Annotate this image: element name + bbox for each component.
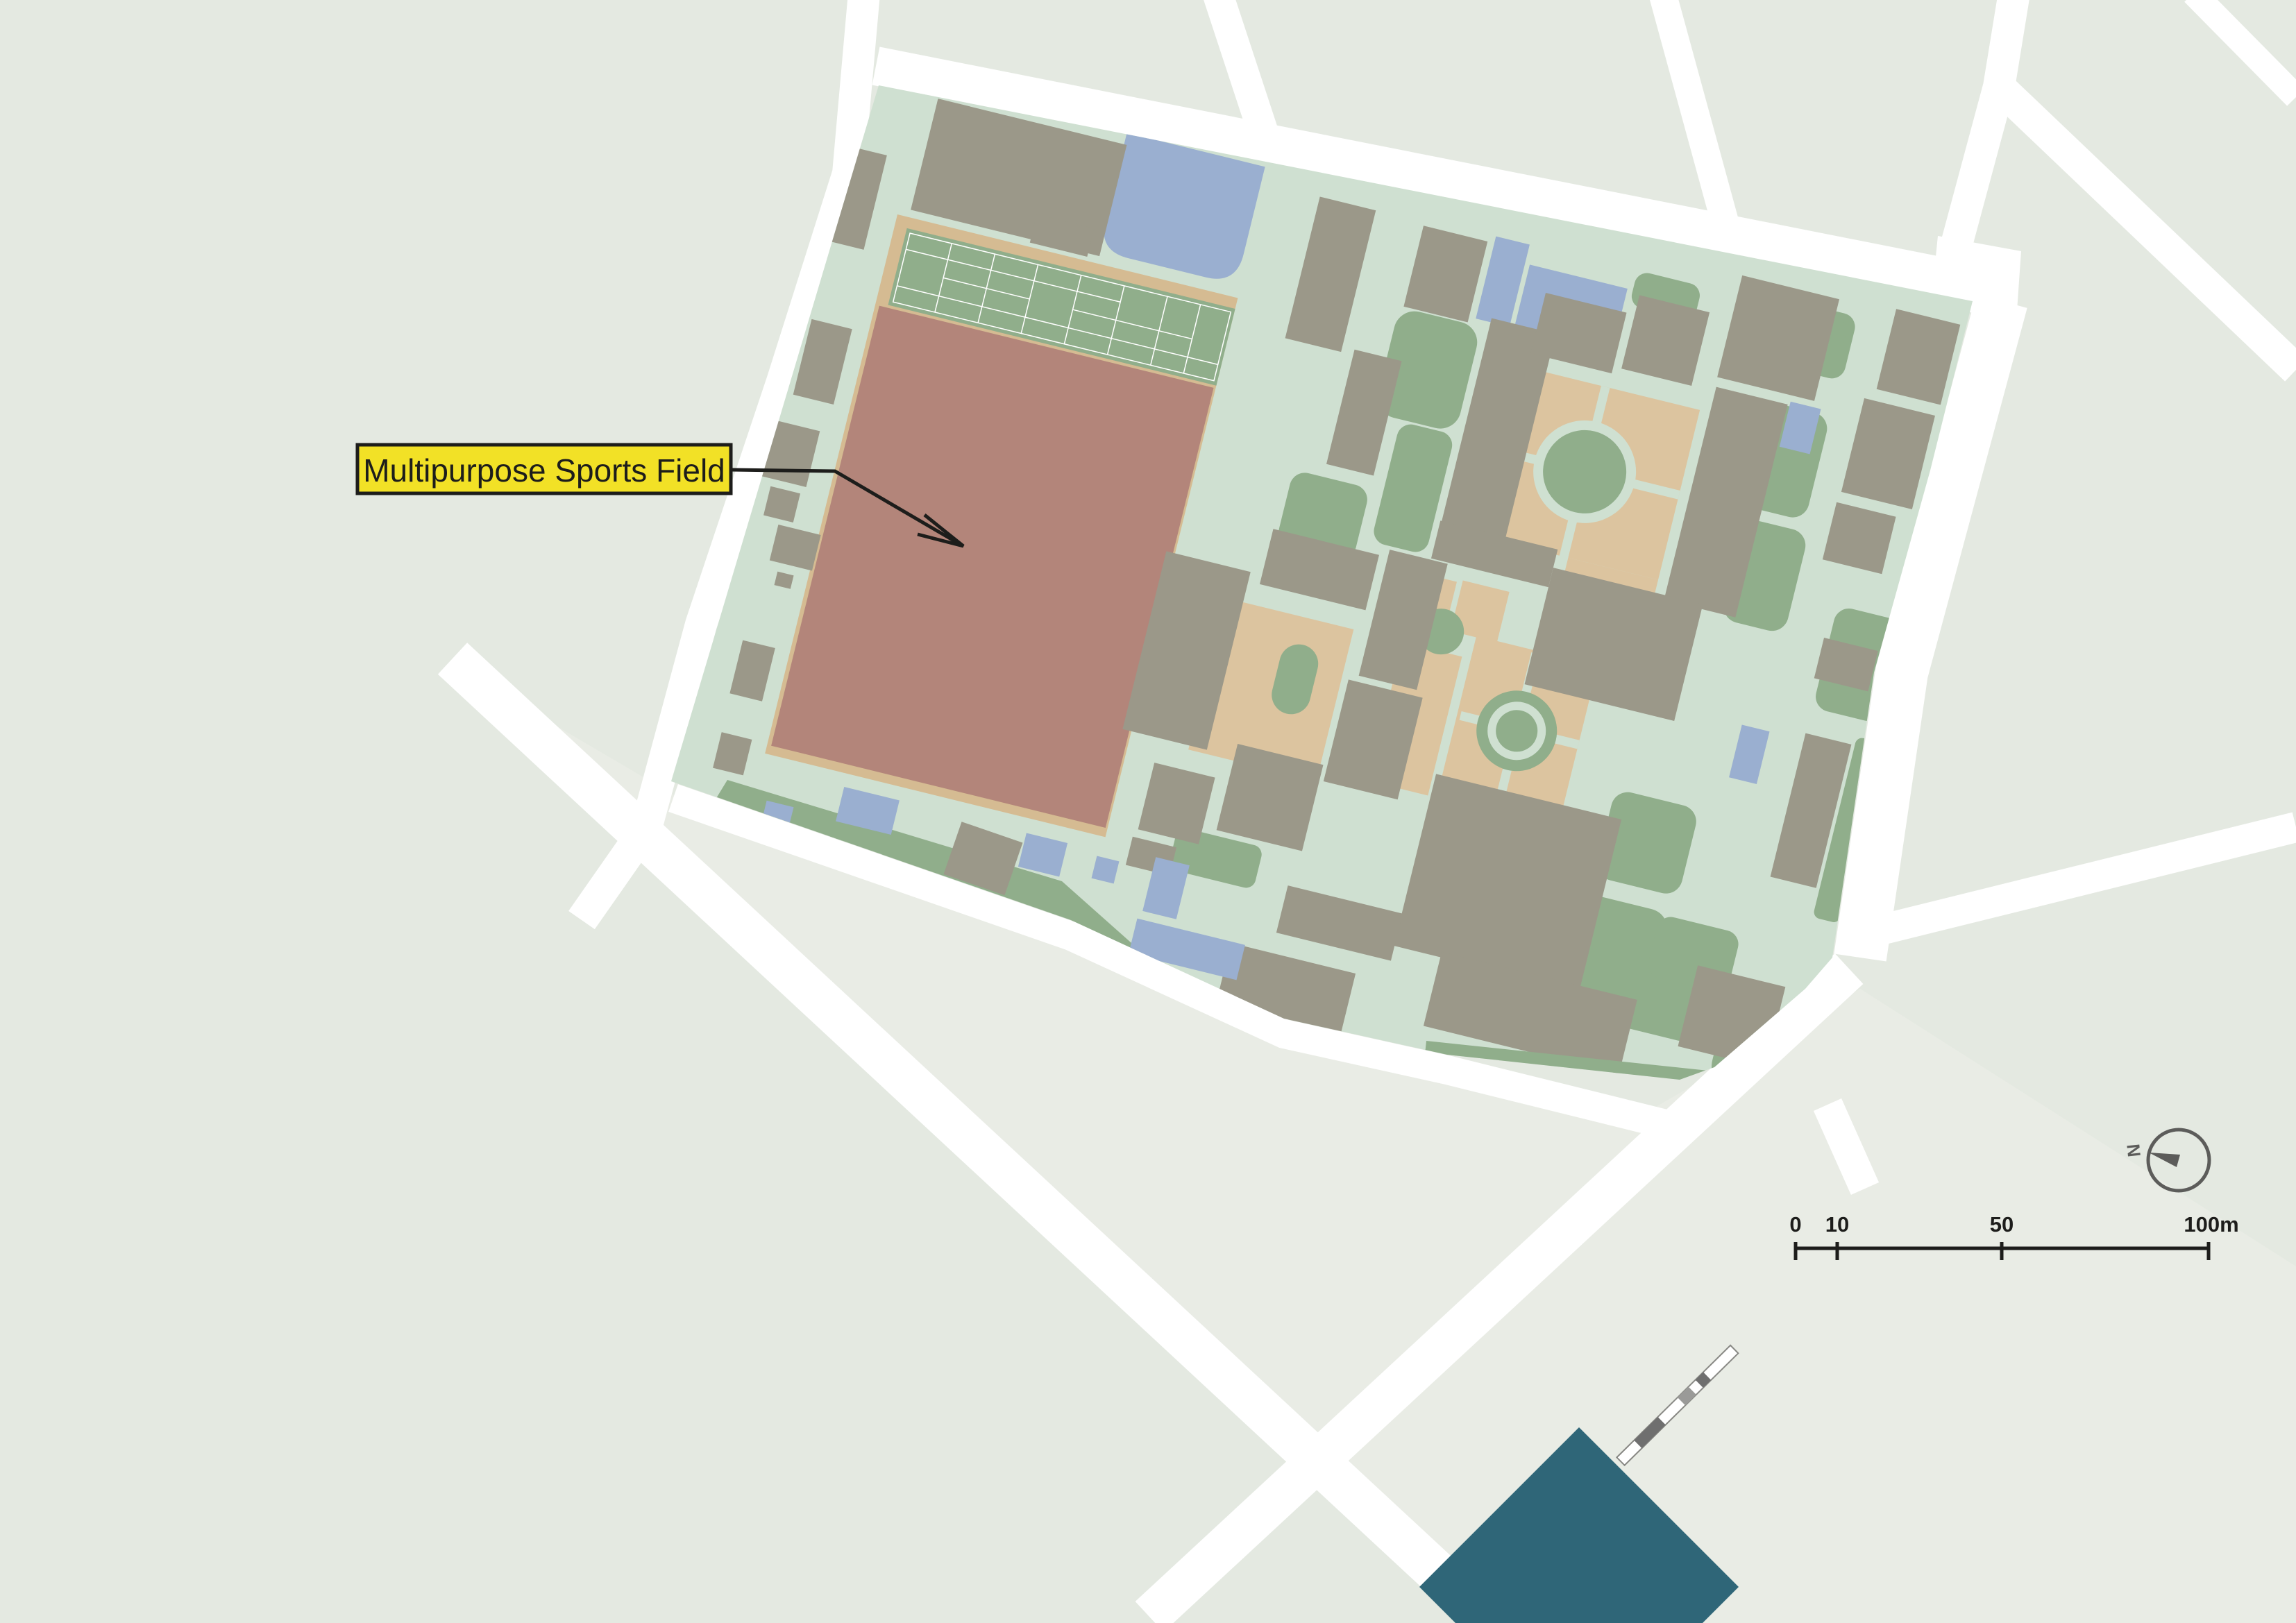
svg-text:10: 10 bbox=[1825, 1212, 1849, 1237]
svg-text:Multipurpose Sports Field: Multipurpose Sports Field bbox=[363, 452, 725, 488]
svg-text:100m: 100m bbox=[2184, 1212, 2238, 1237]
svg-text:N: N bbox=[2122, 1143, 2145, 1158]
svg-text:50: 50 bbox=[1990, 1212, 2014, 1237]
svg-text:0: 0 bbox=[1789, 1212, 1801, 1237]
